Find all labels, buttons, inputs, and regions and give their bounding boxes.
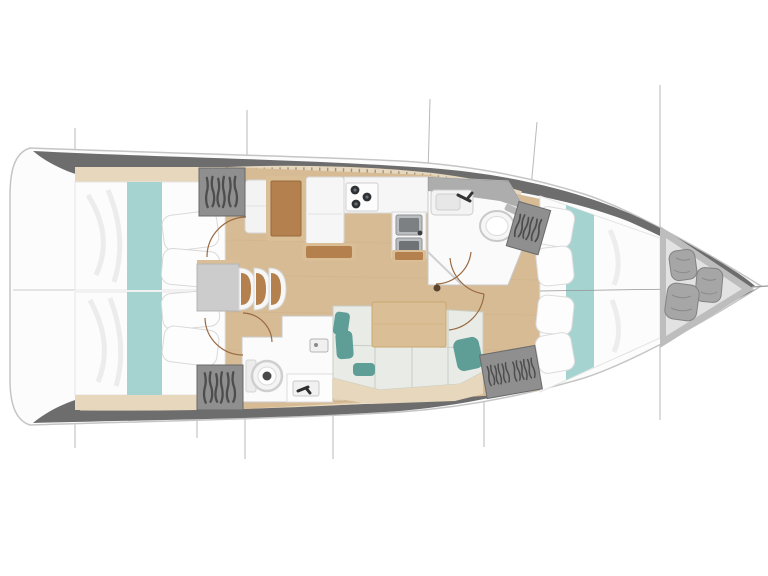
toilet-lid: [486, 217, 508, 236]
bed-runner: [127, 182, 162, 290]
pillow: [535, 245, 575, 287]
faucet-icon: [418, 231, 423, 236]
bed-runner: [127, 292, 162, 395]
fender: [664, 282, 701, 322]
wash-basin-unit: [287, 374, 333, 402]
dining-table: [372, 302, 446, 347]
shower-dot: [314, 343, 318, 347]
burner-center: [365, 195, 368, 198]
wardrobe-aft-port: [199, 168, 245, 216]
chart-table-top: [271, 181, 301, 236]
wardrobe-forward-starboard: [480, 345, 543, 398]
sink-well: [399, 218, 419, 232]
toilet-drain: [263, 372, 272, 381]
stove: [346, 183, 378, 211]
wardrobe-aft-starboard: [197, 365, 243, 410]
saloon-sofa: [332, 302, 484, 404]
cushion: [335, 330, 354, 359]
burner-center: [354, 202, 357, 205]
pillow: [534, 331, 576, 375]
chart-table: [266, 176, 306, 241]
pillow: [535, 294, 575, 336]
island-counter: [302, 243, 356, 261]
burner-center: [353, 188, 356, 191]
stove-panel: [346, 183, 378, 211]
cushion: [353, 363, 375, 376]
folding-chairs: [239, 268, 286, 310]
pillow: [161, 325, 220, 367]
fridge-counter: [306, 177, 344, 244]
floorplan-svg: Sailing yacht interior layout plan — top…: [0, 0, 768, 576]
toilet: [246, 360, 282, 392]
sink-base-cabinet: [392, 250, 426, 262]
boat-floorplan: Sailing yacht interior layout plan — top…: [0, 0, 768, 576]
fender: [668, 248, 698, 281]
double-sink: [396, 215, 422, 256]
wash-basin: [436, 194, 460, 210]
table-top: [197, 264, 239, 311]
island-top: [306, 246, 352, 258]
saloon-table: [197, 260, 239, 311]
shower-fitting-icon: [310, 339, 328, 352]
mast-post: [434, 285, 441, 292]
cabinet-top: [395, 252, 423, 260]
